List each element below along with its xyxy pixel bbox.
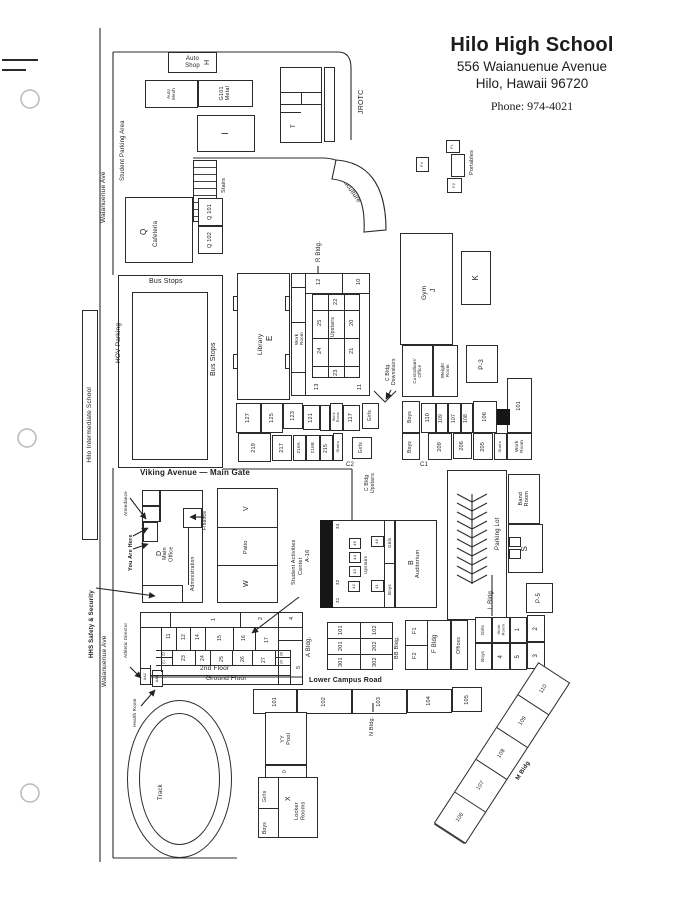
r-strip-h3: [291, 372, 305, 373]
vpw-div1: [217, 527, 278, 528]
r11: 11: [355, 381, 365, 392]
work-room-c1: Work Room: [507, 433, 532, 460]
att-divider: [142, 506, 160, 507]
a21: 21: [161, 658, 168, 666]
q-label: Q: [138, 224, 151, 240]
room-4l-label: 4: [498, 655, 505, 659]
room-216a-label: 216A: [297, 442, 302, 453]
a4: 4: [287, 613, 297, 624]
room-110-label: 110: [425, 413, 431, 422]
r22: 22: [331, 296, 341, 307]
boys-c-lower-label: Boys: [408, 441, 414, 453]
viking-avenue: Viking Avenue — Main Gate: [140, 469, 250, 478]
security-office-box: [142, 585, 183, 603]
bus-loop-inner: [132, 292, 208, 460]
room-205: 205: [473, 433, 493, 460]
r-work-room: Work Room: [292, 324, 306, 354]
room-n103-label: 103: [376, 697, 382, 707]
room-m109-label: 109: [517, 715, 527, 726]
school-phone: Phone: 974-4021: [430, 99, 634, 114]
k-bldg-label: K: [472, 275, 481, 281]
yy-pool: YY Pool: [265, 712, 307, 765]
a28: 28: [279, 650, 286, 658]
a2: 2: [256, 613, 266, 624]
room-46-label: 46: [375, 539, 379, 544]
a25: 25: [218, 654, 227, 665]
room-127-label: 127: [245, 413, 251, 423]
portable-p2-label: P2: [453, 183, 457, 188]
corner-marks: [2, 60, 38, 70]
room-n103: 103: [352, 689, 407, 714]
a-band-left: [150, 665, 151, 685]
room-m110-label: 110: [538, 683, 548, 694]
room-44: 44: [349, 552, 361, 563]
room-121: 121: [303, 405, 320, 430]
p5-label: P-5: [536, 593, 543, 603]
cafeteria-label: Cafeteria: [151, 213, 162, 255]
room-2l-label: 2: [533, 627, 540, 631]
l-bldg-label: L Bldg.: [486, 583, 497, 615]
a29: 29: [279, 658, 286, 666]
s-door-1: [509, 537, 521, 547]
attendance-box-1: [142, 490, 160, 506]
room-101c: 101: [507, 378, 532, 433]
room-46: 46: [371, 536, 384, 547]
g101-metal-label: G101 Metal: [219, 86, 231, 100]
room-43: 43: [349, 566, 361, 577]
parking-lot-label: Parking Lot: [493, 504, 504, 564]
sac-strip-h: [384, 563, 395, 564]
c1-label: C1: [420, 462, 428, 469]
weight-room: Weight Room: [433, 345, 458, 397]
room-45-label: 45: [353, 541, 357, 546]
f-v: [427, 620, 428, 670]
jrotc: JROTC: [356, 78, 368, 126]
c-bldg-downstairs: C Bldg. Downstairs: [384, 350, 400, 394]
room-n102-label: 102: [321, 697, 327, 707]
room-42-label: 42: [352, 584, 356, 589]
room-41: 41: [371, 580, 384, 592]
r-top-div: [305, 293, 370, 294]
k-bldg: K: [461, 251, 491, 305]
room-3l-label: 3: [533, 654, 540, 658]
linework-overlay: [0, 0, 700, 906]
school-name: Hilo High School: [430, 34, 634, 57]
a-band-right: [290, 650, 291, 685]
sac-upstairs: Upstairs: [361, 549, 370, 581]
portable-p2: P2: [447, 178, 462, 193]
room-n101-label: 101: [272, 697, 278, 707]
a23: 23: [180, 653, 189, 664]
f-bldg-label: F Bldg: [430, 629, 441, 659]
boys-l-label: Boys: [481, 651, 486, 662]
band-room-label: Band Room: [518, 491, 530, 506]
custodians-office-label: Custodians' Office: [413, 358, 423, 384]
f-h: [405, 645, 427, 646]
weight-room-label: Weight Room: [441, 363, 451, 378]
offices: Offices: [451, 620, 468, 670]
p3: P-3: [466, 345, 498, 383]
room-125-label: 125: [269, 413, 275, 423]
room-5l-label: 5: [515, 655, 522, 659]
t-bldg-wing: [324, 67, 335, 142]
room-123: 123: [283, 403, 303, 429]
room-m107-label: 107: [476, 780, 486, 791]
a22: 22: [161, 650, 168, 658]
room-108-label: 108: [464, 414, 470, 423]
a16-room: 16: [240, 633, 249, 644]
stairs-c2: Stairs: [333, 433, 343, 461]
a-r3v5: [252, 650, 253, 665]
r-bldg-label: R Bldg.: [314, 237, 325, 266]
a-col-div: [278, 640, 303, 641]
r-strip-h1: [291, 287, 305, 288]
gym-label: Gym: [419, 280, 430, 305]
r21: 21: [347, 345, 357, 356]
yy-pool-label: YY Pool: [280, 733, 292, 745]
bb-301: 301: [336, 656, 346, 668]
room-215-label: 215: [324, 444, 330, 453]
hov-parking: HOV Parking: [113, 312, 124, 374]
v-label: V: [241, 502, 253, 516]
attendance-box-2: [142, 506, 160, 522]
c-black-square: [497, 409, 510, 425]
room-m106-label: 106: [455, 812, 465, 823]
bb-202: 202: [370, 640, 380, 652]
a12: 12: [180, 632, 189, 643]
room-4l: 4: [492, 643, 510, 670]
sac-32: 32: [333, 577, 342, 588]
a-r3v1: [172, 650, 173, 665]
portable-mid: [451, 154, 465, 177]
hhs-safety: HHS Safety & Security: [87, 578, 98, 670]
room-n101: 101: [253, 689, 297, 714]
hilo-intermediate-school: Hilo Intermediate School: [82, 310, 98, 540]
room-127: 127: [236, 403, 261, 433]
room-n102: 102: [297, 689, 352, 714]
a-r2v1: [176, 627, 177, 650]
q102: Q 102: [198, 226, 223, 254]
t-h2: [280, 104, 322, 105]
room-110: 110: [421, 403, 436, 433]
stairs-c1-label: Stairs: [498, 441, 502, 452]
portable-p1-label: P1: [451, 144, 455, 149]
room-106: 106: [473, 401, 497, 433]
portable-p4: P4: [416, 157, 429, 172]
a17: 17: [263, 635, 272, 646]
n-bldg-label: N Bldg.: [367, 711, 377, 741]
locker-girls: Girls: [261, 784, 270, 808]
girls-c2-label: Girls: [359, 442, 365, 453]
girls-l: Girls: [475, 617, 492, 643]
track-label: Track: [156, 775, 167, 809]
girls-c-upper: Girls: [362, 403, 379, 429]
boys-c-upper: Boys: [402, 401, 420, 433]
health-room-arrow: [141, 690, 155, 706]
bb-302: 302: [370, 656, 380, 668]
r25: 25: [315, 317, 325, 328]
i-bldg: I: [197, 115, 255, 152]
h-label: H: [202, 55, 214, 69]
room-45: 45: [349, 538, 361, 549]
library-notch-3: [285, 296, 290, 311]
band-room: Band Room: [508, 474, 540, 524]
work-room-l-label: Work Room: [497, 624, 506, 635]
room-209: 209: [428, 433, 452, 460]
locker-rooms-label: Locker Rooms: [292, 788, 309, 834]
teacher-work-room: Work Room: [330, 403, 343, 431]
library-notch-2: [233, 354, 238, 369]
g101-metal: G101 Metal: [198, 80, 253, 107]
hole-punch-bottom: [21, 784, 39, 802]
room-42: 42: [348, 581, 360, 592]
t-h3: [280, 112, 301, 113]
a-row1-v1: [240, 612, 241, 627]
a14: 14: [194, 632, 203, 643]
sac-girls: Girls: [385, 530, 394, 555]
room-205-label: 205: [480, 442, 486, 452]
library-notch-1: [233, 296, 238, 311]
room-106-label: 106: [482, 412, 488, 422]
a-top-left: [170, 612, 171, 627]
library-notch-4: [285, 354, 290, 369]
aquaculture: Aquaculture: [335, 170, 362, 204]
sac-34: 34: [333, 521, 342, 532]
room-219: 219: [238, 433, 271, 462]
room-101c-label: 101: [516, 401, 522, 411]
room-n104-label: 104: [426, 696, 432, 706]
boys-c-lower: Boys: [402, 433, 420, 460]
health-room: Health Room: [130, 696, 139, 730]
room-5l: 5: [510, 643, 527, 670]
room-217-label: 217: [279, 443, 285, 453]
second-floor: 2nd Floor: [200, 665, 229, 672]
custodians-office: Custodians' Office: [402, 345, 433, 397]
a26: 26: [239, 654, 248, 665]
room-n105: 105: [452, 687, 482, 712]
a11: 11: [165, 631, 174, 642]
q101-label: Q 101: [207, 204, 213, 220]
a-r2v2: [190, 627, 191, 650]
vpw-div2: [217, 565, 278, 566]
waianuenue-ave-lower: Waianuenue Ave: [99, 617, 110, 705]
s-door-2: [509, 549, 521, 559]
a-r2v3: [205, 627, 206, 650]
portable-p1: P1: [446, 140, 460, 153]
locker-h: [258, 808, 278, 809]
room-n104: 104: [407, 689, 452, 713]
work-room-l: Work Room: [492, 617, 510, 643]
library-e: E: [264, 330, 277, 346]
room-1l-label: 1: [515, 628, 522, 632]
room-108: 108: [461, 403, 473, 433]
r13: 13: [312, 381, 322, 392]
room-216a: 216A: [293, 435, 306, 461]
a-r3v3: [210, 650, 211, 665]
room-n105-label: 105: [464, 695, 470, 705]
attendance-label: Attendance: [121, 486, 130, 522]
p5: P-5: [526, 583, 553, 613]
att-right: [160, 490, 161, 522]
sac-black-bar: [320, 520, 333, 608]
girls-c-upper-label: Girls: [368, 410, 374, 421]
room-2l: 2: [527, 615, 545, 642]
p3-label: P-3: [478, 359, 485, 370]
c-up-small: [320, 405, 330, 431]
stairs-c2-label: Stairs: [336, 441, 340, 452]
locker-v: [278, 777, 279, 838]
f1-label: F1: [410, 625, 420, 637]
room-109: 109: [436, 403, 448, 433]
a-r3v4: [232, 650, 233, 665]
campus-map-page: Hilo High School 556 Waianuenue Avenue H…: [0, 0, 700, 906]
patio-label: Patio: [241, 536, 251, 558]
room-43-label: 43: [353, 569, 357, 574]
a5: 5: [294, 662, 304, 673]
a15: 15: [216, 633, 225, 644]
r24: 24: [315, 345, 325, 356]
r10: 10: [354, 276, 364, 287]
track-inner: [139, 713, 220, 845]
room-209-label: 209: [437, 442, 443, 452]
d-label: D: [154, 546, 166, 560]
administration-label: Administration: [189, 547, 198, 601]
stairs-upper-label: Stairs: [219, 168, 229, 202]
r-top-v: [342, 273, 343, 293]
a27: 27: [260, 655, 269, 666]
a-r2v4: [233, 627, 234, 650]
lower-campus-road: Lower Campus Road: [309, 677, 382, 685]
room-107: 107: [448, 403, 461, 433]
room-44-label: 44: [353, 555, 357, 560]
room-206: 206: [453, 433, 472, 459]
room-123-label: 123: [290, 411, 296, 421]
f2-label: F2: [410, 650, 420, 662]
a-r3v2: [195, 650, 196, 665]
room-aa2-label: AA2: [144, 673, 148, 680]
auto-mech: Auto Mech: [145, 80, 198, 108]
room-117: 117: [343, 405, 360, 431]
sac-31: 31: [333, 595, 342, 606]
t-bldg: [280, 67, 322, 143]
you-are-here-box: [143, 522, 158, 542]
t-v1: [301, 92, 302, 104]
sac-boys: Boys: [385, 578, 394, 602]
r-strip-h2: [291, 322, 305, 323]
r23: 23: [331, 367, 341, 378]
room-125: 125: [261, 403, 283, 433]
you-are-here-label: You Are Here: [126, 529, 136, 577]
student-parking-area: Student Parking Area: [118, 98, 129, 203]
athletic-director: Athletic Director: [121, 615, 130, 665]
room-121-label: 121: [308, 413, 314, 423]
c-bldg-upstairs: C Bldg Upstairs: [363, 464, 379, 502]
auditorium-label: Auditorium: [413, 537, 423, 591]
hilo-intermediate-school-label: Hilo Intermediate School: [86, 387, 93, 463]
boys-l: Boys: [475, 643, 492, 670]
s-bldg-label: S: [521, 546, 530, 552]
a-row2-bottom: [156, 650, 290, 651]
school-header: Hilo High School 556 Waianuenue Avenue H…: [430, 34, 634, 114]
bb-201: 201: [336, 640, 346, 652]
room-217: 217: [272, 435, 292, 461]
finance-label: Finance: [201, 504, 210, 536]
room-215: 215: [320, 435, 333, 461]
hole-punch-middle: [18, 429, 36, 447]
room-aa1: AA1: [152, 670, 163, 687]
r12: 12: [314, 276, 324, 287]
a-r2v5: [255, 627, 256, 650]
waianuenue-ave-upper: Waianuenue Ave: [98, 150, 109, 245]
locker-boys: Boys: [261, 816, 270, 840]
room-206-label: 206: [459, 441, 465, 451]
room-41-label: 41: [375, 584, 379, 589]
hole-punch-top: [21, 90, 39, 108]
room-117-label: 117: [348, 413, 354, 422]
c2-label: C2: [346, 462, 354, 469]
girls-l-label: Girls: [481, 625, 486, 635]
finance-box: [183, 508, 202, 528]
bus-stops-right: Bus Stops: [208, 330, 220, 388]
bb-102: 102: [370, 624, 380, 636]
girls-c2: Girls: [352, 437, 372, 459]
boys-c-upper-label: Boys: [408, 411, 414, 423]
auto-shop-label: Auto Shop: [185, 56, 200, 69]
w-label: W: [241, 577, 253, 591]
bb-v: [360, 622, 361, 670]
room-1l: 1: [510, 617, 527, 643]
room-216b-label: 216B: [311, 442, 316, 453]
a1: 1: [209, 614, 219, 625]
r20: 20: [347, 317, 357, 328]
stairs-c1: Stairs: [494, 433, 507, 460]
portables-label: Portables: [467, 137, 477, 187]
i-bldg-label: I: [221, 132, 231, 135]
bb-bldg-label: BB Bldg.: [392, 631, 402, 663]
q102-label: Q 102: [207, 232, 213, 248]
ground-floor: Ground Floor: [206, 675, 247, 682]
auto-mech-label: Auto Mech: [167, 88, 177, 100]
work-room-c1-label: Work Room: [515, 440, 525, 453]
room-107-label: 107: [452, 414, 458, 423]
bus-stops-top: Bus Stops: [149, 278, 183, 286]
a24: 24: [199, 653, 208, 664]
school-address-line1: 556 Waianuenue Avenue: [430, 59, 634, 74]
room-m108-label: 108: [497, 748, 507, 759]
center-label: Center: [296, 548, 306, 584]
bb-h1: [327, 638, 393, 639]
bb-h2: [327, 654, 393, 655]
r-upstairs: Upstairs: [329, 310, 338, 344]
room-o-label: 0: [283, 770, 289, 773]
t-label: T: [289, 120, 300, 132]
q101: Q 101: [198, 198, 223, 226]
teacher-work-room-label: Work Room: [333, 412, 341, 422]
room-109-label: 109: [439, 414, 445, 423]
school-address-line2: Hilo, Hawaii 96720: [430, 76, 634, 91]
offices-label: Offices: [457, 637, 463, 654]
bb-101: 101: [336, 624, 346, 636]
a-bldg-label: A Bldg.: [304, 632, 315, 662]
portable-p4-label: P4: [421, 162, 425, 167]
upper-walk: [193, 158, 358, 178]
room-219-label: 219: [251, 443, 257, 453]
room-216b: 216B: [306, 435, 320, 461]
